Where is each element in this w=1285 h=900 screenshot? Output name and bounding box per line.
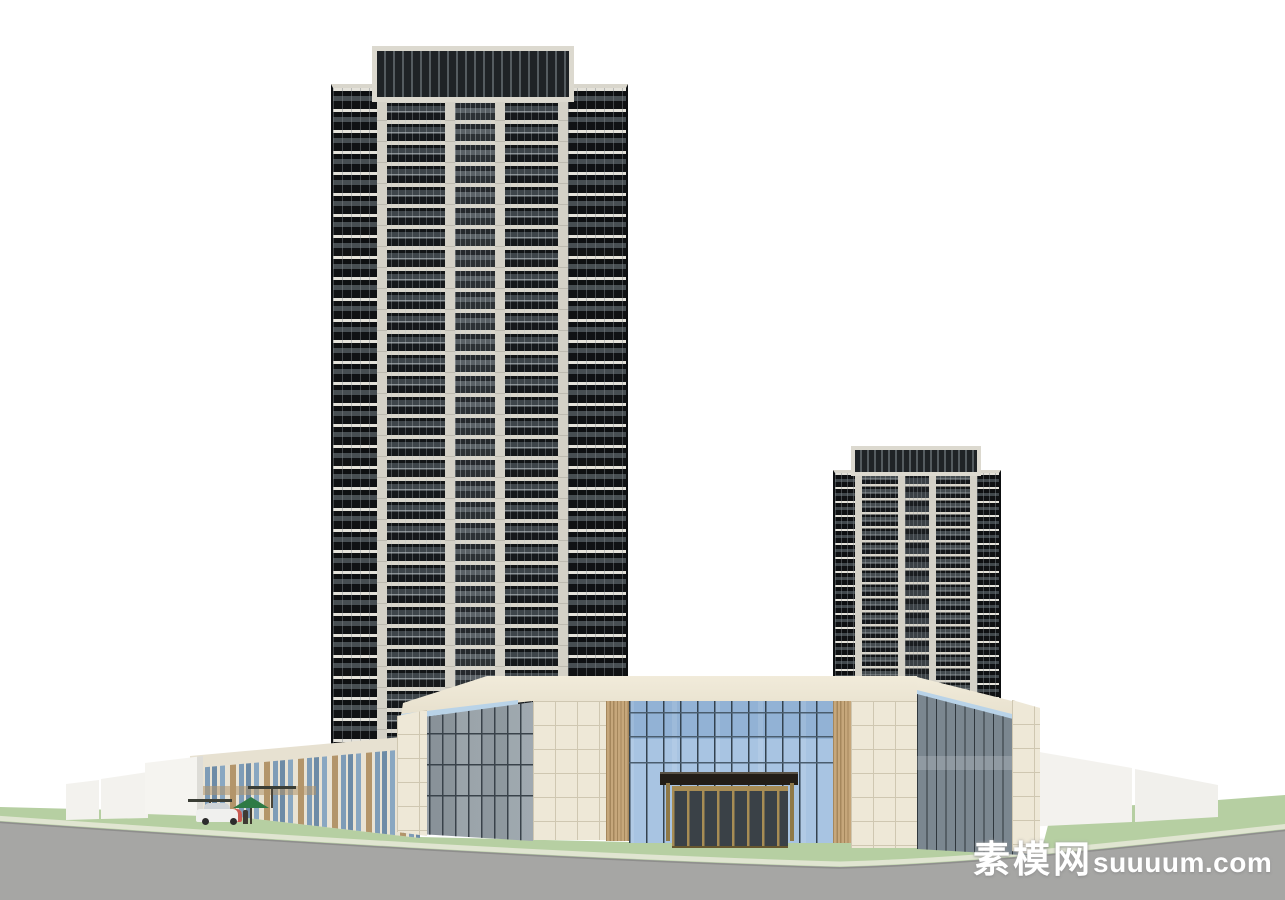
podium-left-corner-pier (397, 710, 427, 836)
left-tower-center-bay (455, 99, 495, 756)
car-wheel (230, 818, 237, 825)
left-tower-pier (495, 99, 505, 756)
render-canvas: 素模网suuuum.com (0, 0, 1285, 900)
left-boundary-wall (101, 772, 148, 819)
left-tower-west-wing (331, 84, 379, 760)
podium-stone-pier (533, 701, 607, 840)
tree-trunk (271, 789, 273, 808)
entrance-doors (672, 786, 788, 848)
podium-wood-slat-strip (606, 701, 629, 841)
right-tower-center-bay (905, 470, 931, 703)
podium-wood-slat-strip (833, 701, 851, 843)
watermark-cjk: 素模网 (973, 829, 1093, 883)
parasol-pole (250, 808, 252, 824)
watermark: 素模网suuuum.com (973, 829, 1272, 883)
right-tower-east-wing (977, 470, 1001, 706)
car-wheel (202, 818, 209, 825)
right-tower-pier (898, 470, 905, 703)
person-figure (243, 810, 248, 824)
entrance-canopy (660, 772, 798, 785)
left-tower-pier (445, 99, 455, 756)
left-tower-east-wing (568, 84, 628, 760)
left-boundary-wall (66, 780, 99, 820)
left-tower-crown (372, 46, 574, 102)
left-tower-pier (558, 99, 568, 756)
watermark-latin: suuuum.com (1093, 847, 1272, 879)
right-tower-crown (851, 446, 981, 476)
annex-white-volume (145, 756, 203, 816)
right-tower-pier (929, 470, 936, 703)
entrance-canopy-post (666, 783, 670, 841)
right-tower-west-wing (833, 470, 857, 706)
podium-corner-stone-pier (851, 701, 920, 848)
right-tower-pier (970, 470, 977, 703)
right-tower-pier (855, 470, 862, 703)
entrance-canopy-post (790, 783, 794, 841)
left-tower-pier (377, 99, 387, 756)
